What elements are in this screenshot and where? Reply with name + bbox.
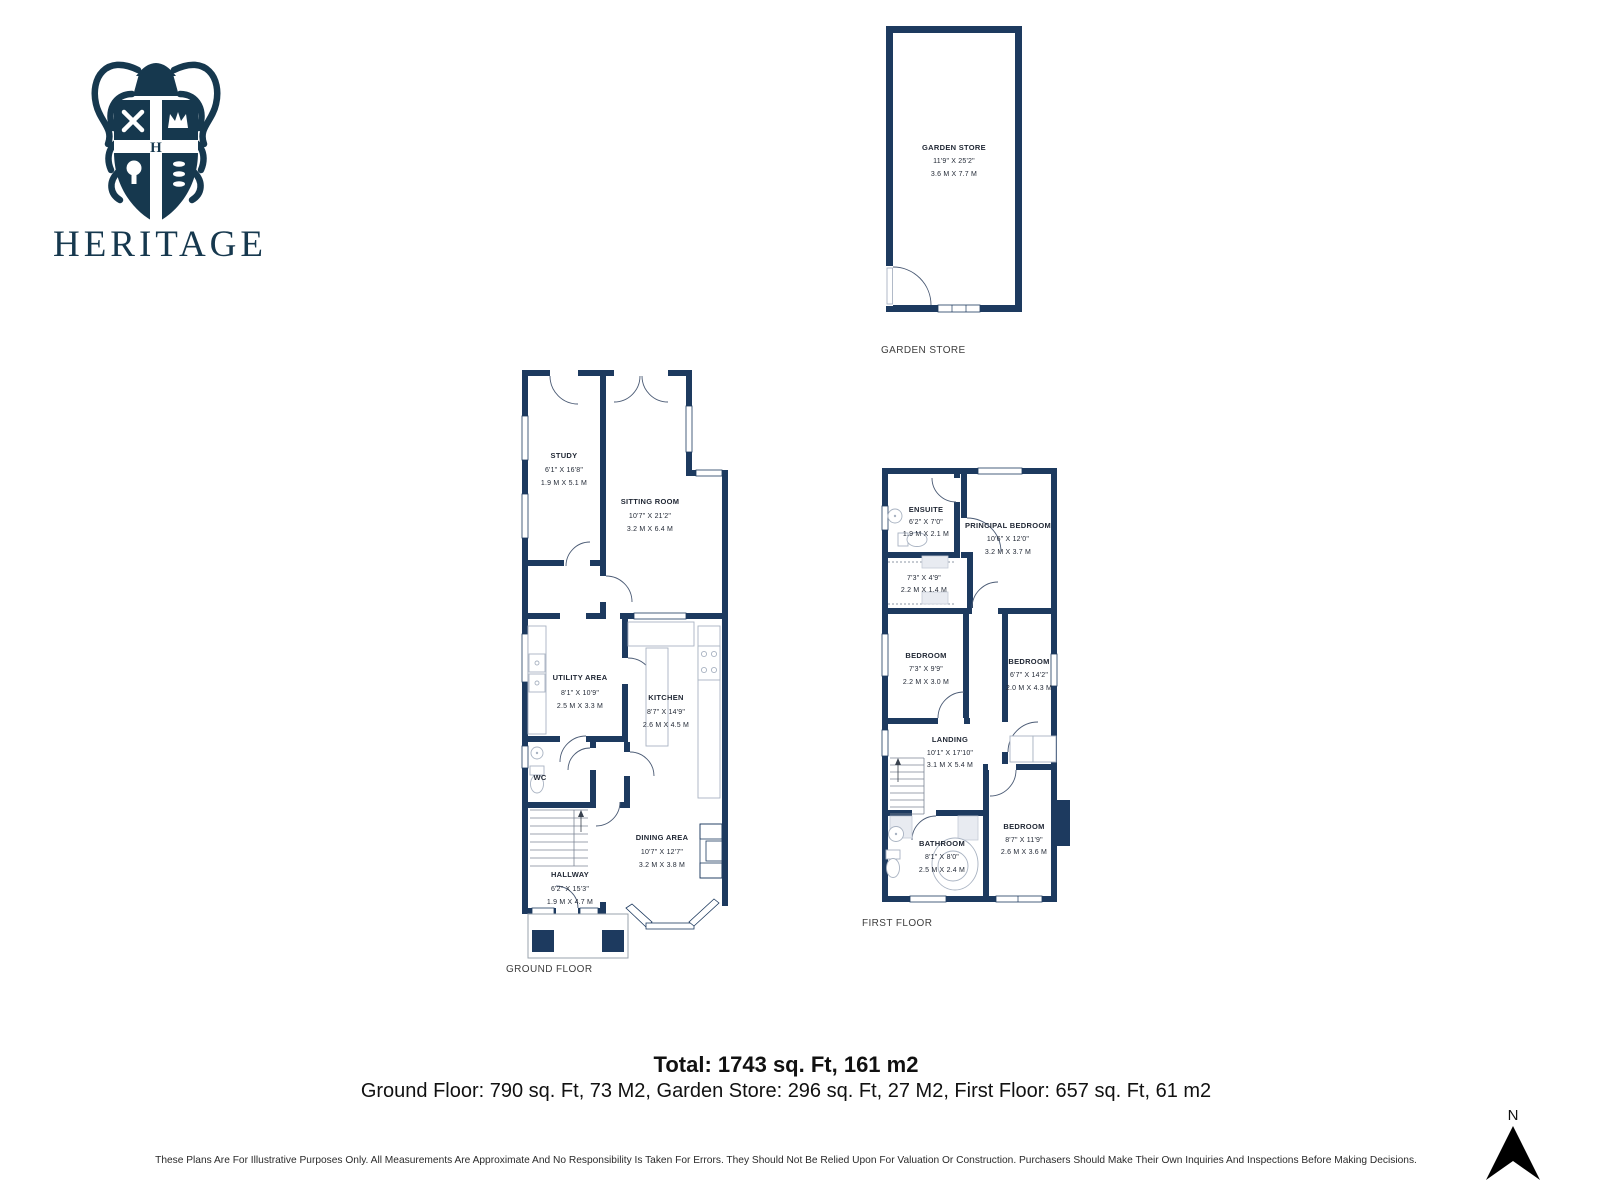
room-label-study: STUDY 6'1" X 16'8" 1.9 M X 5.1 M bbox=[541, 451, 587, 487]
svg-text:8'7" X 11'9": 8'7" X 11'9" bbox=[1005, 837, 1043, 844]
svg-text:11'9" X 25'2": 11'9" X 25'2" bbox=[933, 158, 975, 165]
room-label-ensuite: ENSUITE 6'2" X 7'0" 1.9 M X 2.1 M bbox=[903, 505, 949, 538]
wardrobe bbox=[1033, 736, 1056, 762]
svg-text:BEDROOM: BEDROOM bbox=[1003, 822, 1044, 831]
door-swing-icon bbox=[893, 267, 931, 305]
svg-text:2.2 M X 1.4 M: 2.2 M X 1.4 M bbox=[901, 587, 947, 594]
total-area-text: Total: 1743 sq. Ft, 161 m2 bbox=[0, 1053, 1572, 1077]
svg-text:H: H bbox=[150, 140, 162, 156]
svg-text:SITTING ROOM: SITTING ROOM bbox=[621, 497, 680, 506]
porch-pillar bbox=[602, 930, 624, 952]
area-summary: Total: 1743 sq. Ft, 161 m2 Ground Floor:… bbox=[0, 1053, 1572, 1103]
room-label-bedroom-bottom: BEDROOM 8'7" X 11'9" 2.6 M X 3.6 M bbox=[1001, 822, 1047, 856]
room-label-utility: UTILITY AREA 8'1" X 10'9" 2.5 M X 3.3 M bbox=[553, 673, 608, 710]
room-label-garden-store: GARDEN STORE 11'9" X 25'2" 3.6 M X 7.7 M bbox=[922, 143, 986, 178]
svg-text:8'1" X 8'0": 8'1" X 8'0" bbox=[925, 854, 959, 861]
north-compass: N bbox=[1474, 1100, 1554, 1188]
svg-text:6'2" X 7'0": 6'2" X 7'0" bbox=[909, 519, 943, 526]
room-label-closet: 7'3" X 4'9" 2.2 M X 1.4 M bbox=[901, 575, 947, 594]
svg-text:2.0 M X 4.3 M: 2.0 M X 4.3 M bbox=[1006, 685, 1052, 692]
svg-text:8'7" X 14'9": 8'7" X 14'9" bbox=[647, 709, 685, 716]
svg-text:PRINCIPAL BEDROOM: PRINCIPAL BEDROOM bbox=[965, 521, 1051, 530]
svg-text:1.9 M X 2.1 M: 1.9 M X 2.1 M bbox=[903, 531, 949, 538]
ground-floor-stairs-icon bbox=[530, 810, 588, 866]
svg-text:10'1" X 17'10": 10'1" X 17'10" bbox=[927, 750, 974, 757]
ground-floor-plan: STUDY 6'1" X 16'8" 1.9 M X 5.1 M SITTING… bbox=[500, 358, 735, 968]
svg-text:GARDEN STORE: GARDEN STORE bbox=[922, 143, 986, 152]
svg-text:ENSUITE: ENSUITE bbox=[909, 505, 944, 514]
svg-text:STUDY: STUDY bbox=[551, 451, 578, 460]
room-label-wc: WC bbox=[533, 773, 546, 782]
porch-pillar bbox=[532, 930, 554, 952]
svg-text:3.2 M X 6.4 M: 3.2 M X 6.4 M bbox=[627, 526, 673, 533]
door-jamb bbox=[887, 268, 893, 304]
svg-text:7'3" X 4'9": 7'3" X 4'9" bbox=[907, 575, 941, 582]
svg-text:10'7" X 12'7": 10'7" X 12'7" bbox=[641, 849, 683, 856]
svg-text:LANDING: LANDING bbox=[932, 735, 968, 744]
svg-text:7'3" X 9'9": 7'3" X 9'9" bbox=[909, 666, 943, 673]
svg-text:BEDROOM: BEDROOM bbox=[905, 651, 946, 660]
hob-icon bbox=[698, 646, 720, 680]
room-label-sitting-room: SITTING ROOM 10'7" X 21'2" 3.2 M X 6.4 M bbox=[621, 497, 680, 533]
svg-text:6'2" X 15'3": 6'2" X 15'3" bbox=[551, 886, 589, 893]
svg-text:BEDROOM: BEDROOM bbox=[1008, 657, 1049, 666]
svg-text:3.2 M X 3.8 M: 3.2 M X 3.8 M bbox=[639, 862, 685, 869]
fireplace-icon bbox=[700, 824, 722, 878]
north-arrow-icon bbox=[1486, 1126, 1540, 1180]
floorplan-page: H HERITAGE GARDEN STORE 11'9" X 25'2" 3.… bbox=[0, 0, 1600, 1199]
bathroom-toilet-icon bbox=[886, 850, 900, 859]
svg-text:10'6" X 12'0": 10'6" X 12'0" bbox=[987, 536, 1029, 543]
svg-text:3.2 M X 3.7 M: 3.2 M X 3.7 M bbox=[985, 549, 1031, 556]
heritage-logo: H HERITAGE bbox=[38, 22, 288, 272]
svg-text:6'1" X 16'8": 6'1" X 16'8" bbox=[545, 467, 583, 474]
room-label-bathroom: BATHROOM 8'1" X 8'0" 2.5 M X 2.4 M bbox=[919, 839, 965, 874]
svg-text:HALLWAY: HALLWAY bbox=[551, 870, 589, 879]
first-floor-plan: ENSUITE 6'2" X 7'0" 1.9 M X 2.1 M PRINCI… bbox=[858, 452, 1078, 912]
ground-floor-label: GROUND FLOOR bbox=[506, 964, 592, 975]
window bbox=[938, 305, 980, 312]
svg-text:8'1" X 10'9": 8'1" X 10'9" bbox=[561, 690, 599, 697]
svg-text:2.6 M X 3.6 M: 2.6 M X 3.6 M bbox=[1001, 849, 1047, 856]
svg-text:3.1 M X 5.4 M: 3.1 M X 5.4 M bbox=[927, 762, 973, 769]
wardrobe bbox=[1010, 736, 1033, 762]
kitchen-counter bbox=[628, 622, 694, 646]
svg-text:2.6 M X 4.5 M: 2.6 M X 4.5 M bbox=[643, 722, 689, 729]
chimney-breast bbox=[1057, 800, 1070, 846]
svg-text:1.9 M X 4.7 M: 1.9 M X 4.7 M bbox=[547, 899, 593, 906]
crest-shield-icon: H bbox=[114, 100, 198, 223]
room-label-bedroom-right: BEDROOM 6'7" X 14'2" 2.0 M X 4.3 M bbox=[1006, 657, 1052, 692]
floor-areas-text: Ground Floor: 790 sq. Ft, 73 M2, Garden … bbox=[0, 1079, 1572, 1103]
svg-text:KITCHEN: KITCHEN bbox=[648, 693, 683, 702]
svg-text:10'7" X 21'2": 10'7" X 21'2" bbox=[629, 513, 671, 520]
first-floor-label: FIRST FLOOR bbox=[862, 918, 932, 929]
compass-n-label: N bbox=[1508, 1107, 1519, 1124]
porch bbox=[528, 914, 628, 958]
svg-text:2.5 M X 2.4 M: 2.5 M X 2.4 M bbox=[919, 867, 965, 874]
svg-text:UTILITY AREA: UTILITY AREA bbox=[553, 673, 608, 682]
room-label-hallway: HALLWAY 6'2" X 15'3" 1.9 M X 4.7 M bbox=[547, 870, 593, 906]
svg-text:6'7" X 14'2": 6'7" X 14'2" bbox=[1010, 672, 1048, 679]
garden-store-plan: GARDEN STORE 11'9" X 25'2" 3.6 M X 7.7 M bbox=[878, 20, 1028, 320]
disclaimer-text: These Plans Are For Illustrative Purpose… bbox=[0, 1155, 1572, 1166]
first-floor-stairs-icon bbox=[890, 758, 924, 814]
svg-text:3.6 M X 7.7 M: 3.6 M X 7.7 M bbox=[931, 171, 977, 178]
svg-text:DINING AREA: DINING AREA bbox=[636, 833, 689, 842]
svg-text:2.5 M X 3.3 M: 2.5 M X 3.3 M bbox=[557, 703, 603, 710]
svg-text:2.2 M X 3.0 M: 2.2 M X 3.0 M bbox=[903, 679, 949, 686]
brand-wordmark: HERITAGE bbox=[53, 224, 267, 265]
room-label-dining: DINING AREA 10'7" X 12'7" 3.2 M X 3.8 M bbox=[636, 833, 689, 869]
svg-text:1.9 M X 5.1 M: 1.9 M X 5.1 M bbox=[541, 480, 587, 487]
room-label-principal-bedroom: PRINCIPAL BEDROOM 10'6" X 12'0" 3.2 M X … bbox=[965, 521, 1051, 556]
room-label-kitchen: KITCHEN 8'7" X 14'9" 2.6 M X 4.5 M bbox=[643, 693, 689, 729]
garden-store-floor-label: GARDEN STORE bbox=[881, 345, 966, 356]
room-label-landing: LANDING 10'1" X 17'10" 3.1 M X 5.4 M bbox=[927, 735, 974, 769]
svg-text:WC: WC bbox=[533, 773, 546, 782]
svg-text:BATHROOM: BATHROOM bbox=[919, 839, 965, 848]
room-label-bedroom-left: BEDROOM 7'3" X 9'9" 2.2 M X 3.0 M bbox=[903, 651, 949, 686]
